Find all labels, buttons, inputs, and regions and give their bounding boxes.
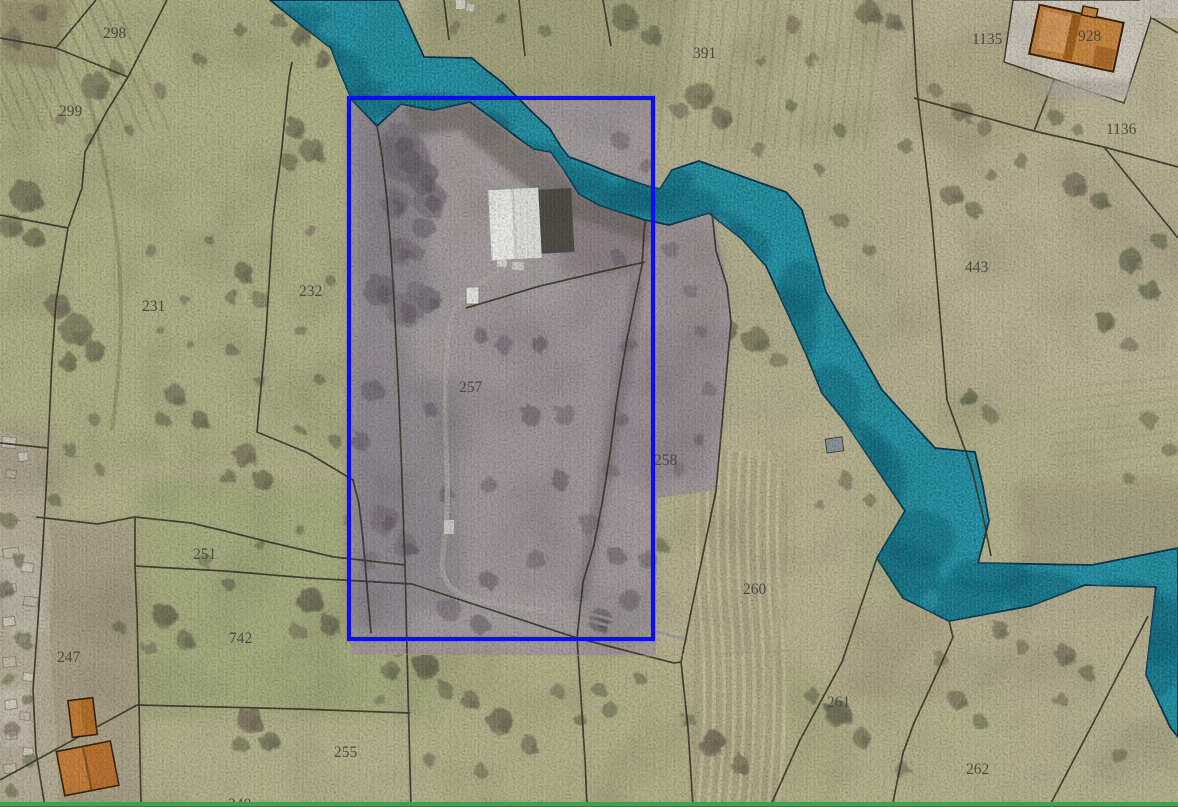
svg-text:299: 299 bbox=[59, 103, 83, 120]
svg-text:262: 262 bbox=[966, 761, 989, 778]
svg-text:928: 928 bbox=[1078, 28, 1102, 45]
svg-text:261: 261 bbox=[827, 694, 850, 711]
svg-text:232: 232 bbox=[299, 283, 322, 300]
svg-text:251: 251 bbox=[193, 546, 216, 563]
svg-text:443: 443 bbox=[965, 259, 989, 276]
svg-text:231: 231 bbox=[142, 298, 165, 315]
svg-text:1136: 1136 bbox=[1106, 121, 1137, 138]
svg-text:247: 247 bbox=[57, 649, 81, 666]
svg-text:257: 257 bbox=[459, 379, 483, 396]
svg-text:260: 260 bbox=[743, 581, 767, 598]
svg-text:1135: 1135 bbox=[972, 31, 1003, 48]
svg-text:391: 391 bbox=[693, 45, 716, 62]
svg-text:742: 742 bbox=[229, 630, 252, 647]
svg-text:255: 255 bbox=[334, 744, 358, 761]
svg-text:258: 258 bbox=[654, 452, 678, 469]
svg-text:298: 298 bbox=[103, 25, 127, 42]
